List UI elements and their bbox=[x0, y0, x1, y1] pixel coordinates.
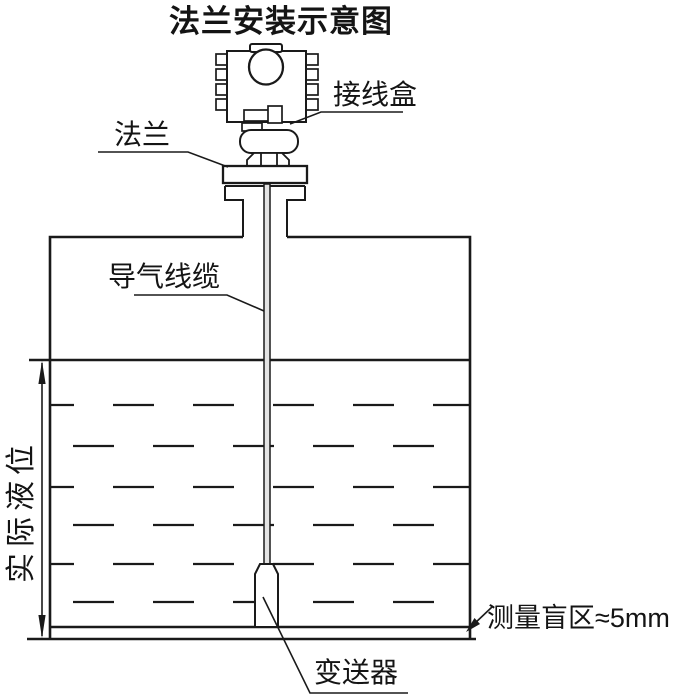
blind-zone-label: 测量盲区≈5mm bbox=[487, 604, 670, 634]
level-dimension-arrow bbox=[38, 361, 45, 638]
flange-plate bbox=[223, 166, 307, 183]
flange-installation-diagram: 法兰安装示意图 接线盒 法兰 导气线缆 实际液位 变送器 测量盲区≈5mm bbox=[0, 0, 700, 700]
leader-air-cable bbox=[134, 295, 264, 311]
leader-flange bbox=[98, 152, 228, 167]
air-cable-line bbox=[264, 184, 270, 564]
flange-label: 法兰 bbox=[114, 120, 170, 151]
conduit-port bbox=[242, 106, 282, 131]
swivel-joint bbox=[240, 130, 298, 153]
diagram-title: 法兰安装示意图 bbox=[131, 5, 431, 39]
transmitter-label: 变送器 bbox=[314, 658, 398, 689]
display-window bbox=[249, 50, 283, 85]
actual-level-label: 实际液位 bbox=[5, 420, 39, 602]
probe-body bbox=[255, 564, 278, 627]
tank-outline bbox=[27, 237, 476, 639]
transmitter-head bbox=[216, 44, 318, 183]
air-cable-label: 导气线缆 bbox=[108, 262, 220, 293]
junction-box-label: 接线盒 bbox=[333, 80, 417, 111]
